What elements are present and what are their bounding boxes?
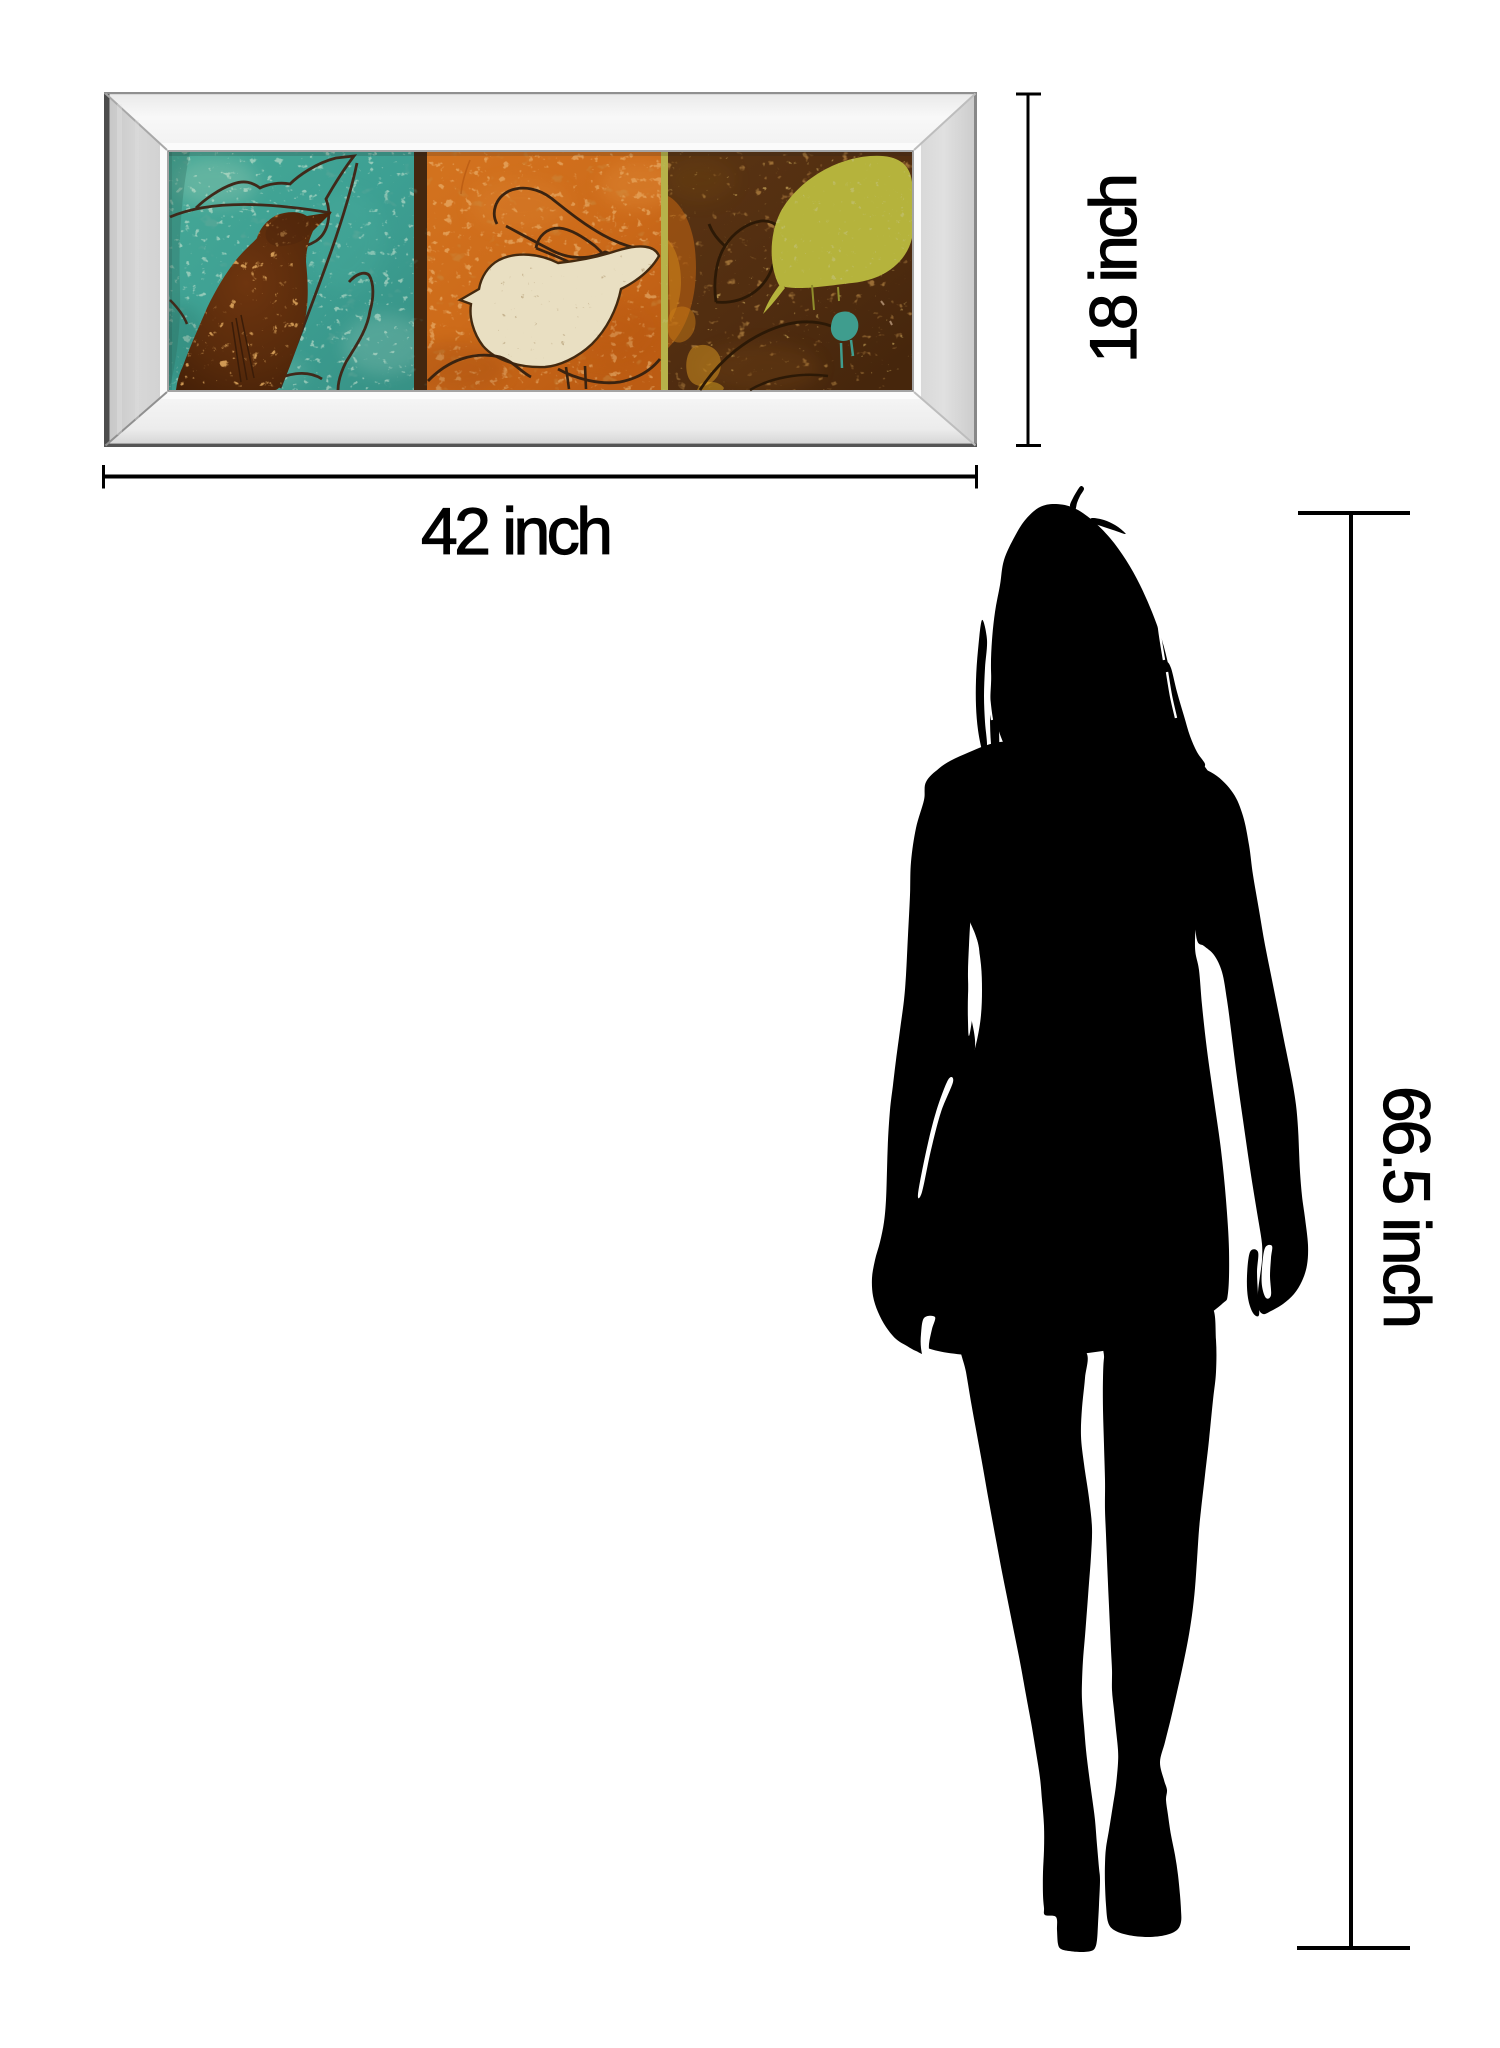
svg-text:66.5 inch: 66.5 inch (1370, 1086, 1444, 1329)
svg-text:42 inch: 42 inch (421, 494, 613, 568)
svg-text:18 inch: 18 inch (1076, 173, 1150, 363)
